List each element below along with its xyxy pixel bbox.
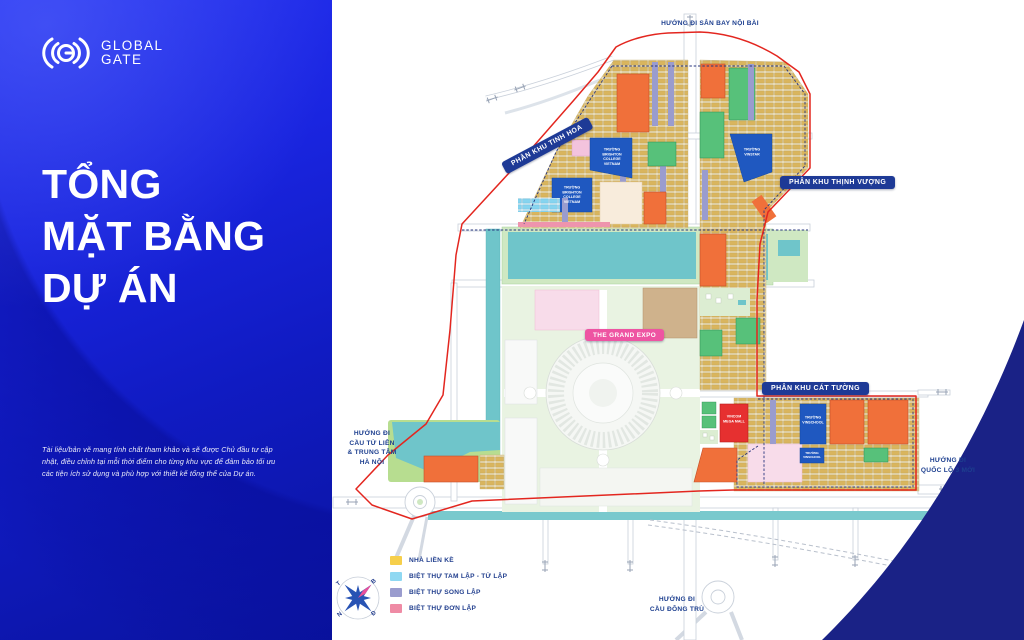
legend-swatch-song-lap <box>390 588 402 597</box>
brand-name-line2: GATE <box>101 53 163 67</box>
compass-east-letter: Đ <box>371 610 379 618</box>
label-brighton-college-1: TRƯỜNG BRIGHTON COLLEGE VIETNAM <box>597 148 627 167</box>
legend-item-tam-tu-lap: BIỆT THỰ TAM LẬP - TỨ LẬP <box>390 572 507 581</box>
legend-label-song-lap: BIỆT THỰ SONG LẬP <box>409 589 481 596</box>
direction-label-south: HƯỚNG ĐI CẦU ĐÔNG TRÙ <box>633 595 721 614</box>
legend-swatch-tam-tu-lap <box>390 572 402 581</box>
left-panel: GLOBAL GATE TỔNG MẶT BẰNG DỰ ÁN Tài liệu… <box>0 0 332 640</box>
legend-label-don-lap: BIỆT THỰ ĐƠN LẬP <box>409 605 476 612</box>
label-brighton-college-2: TRƯỜNG BRIGHTON COLLEGE VIETNAM <box>557 186 587 205</box>
legend-swatch-don-lap <box>390 604 402 613</box>
label-vinschool-1: TRƯỜNG VINSCHOOL <box>802 416 824 425</box>
zone-banner-cat-tuong: PHÂN KHU CÁT TƯỜNG <box>762 382 869 395</box>
masterplan-slide: B T N Đ GLOBAL GATE TỔNG MẶT BẰNG DỰ ÁN … <box>0 0 1024 640</box>
global-gate-logo-icon <box>40 32 92 74</box>
legend-label-lien-ke: NHÀ LIỀN KỀ <box>409 557 454 564</box>
page-title-line3: DỰ ÁN <box>42 262 265 314</box>
label-vincom-mega-mall: VINCOM MEGA MALL <box>722 415 745 424</box>
direction-label-west: HƯỚNG ĐI CẦU TỨ LIÊN & TRUNG TÂM HÀ NỘI <box>328 429 416 467</box>
legend-swatch-lien-ke <box>390 556 402 565</box>
label-vinschool-2: TRƯỜNG VINSCHOOL <box>802 452 821 460</box>
page-title-line2: MẶT BẰNG <box>42 210 265 262</box>
brand-logo: GLOBAL GATE <box>40 32 163 74</box>
brand-name-line1: GLOBAL <box>101 39 163 53</box>
legend-item-lien-ke: NHÀ LIỀN KỀ <box>390 556 507 565</box>
disclaimer-text: Tài liệu/bản vẽ mang tính chất tham khảo… <box>42 444 282 481</box>
page-title-line1: TỔNG <box>42 158 265 210</box>
legend-label-tam-tu-lap: BIỆT THỰ TAM LẬP - TỨ LẬP <box>409 573 507 580</box>
label-vinstar-school: TRƯỜNG VINSTAR <box>736 148 768 157</box>
compass: B T N Đ <box>336 577 379 619</box>
sw-housing <box>480 455 504 489</box>
district-cat-tuong <box>694 398 919 491</box>
direction-label-north: HƯỚNG ĐI SÂN BAY NỘI BÀI <box>640 19 780 29</box>
compass-north-letter: B <box>371 578 379 586</box>
map-legend: NHÀ LIỀN KỀ BIỆT THỰ TAM LẬP - TỨ LẬP BI… <box>390 556 507 620</box>
legend-item-song-lap: BIỆT THỰ SONG LẬP <box>390 588 507 597</box>
direction-label-east: HƯỚNG ĐI QUỐC LỘ 3 MỚI <box>902 456 994 475</box>
brand-name: GLOBAL GATE <box>101 39 163 67</box>
page-title: TỔNG MẶT BẰNG DỰ ÁN <box>42 158 265 314</box>
legend-item-don-lap: BIỆT THỰ ĐƠN LẬP <box>390 604 507 613</box>
compass-west-letter: T <box>336 580 343 587</box>
zone-banner-thinh-vuong: PHÂN KHU THỊNH VƯỢNG <box>780 176 895 189</box>
zone-banner-grand-expo: THE GRAND EXPO <box>585 329 664 341</box>
grand-expo-district <box>502 286 700 512</box>
